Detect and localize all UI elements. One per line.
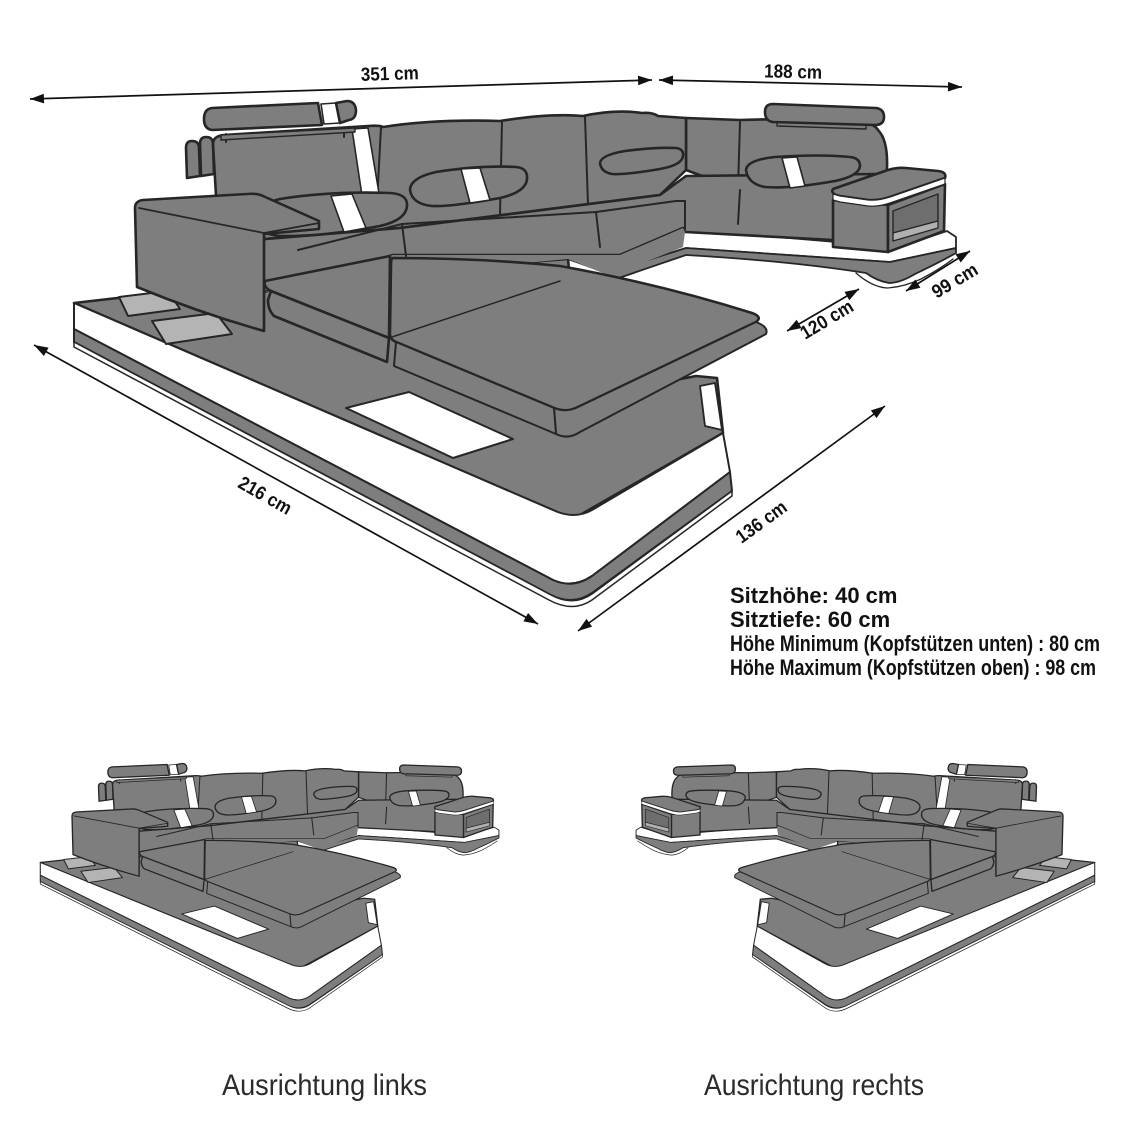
svg-text:99 cm: 99 cm	[928, 259, 982, 303]
svg-text:188 cm: 188 cm	[764, 61, 822, 83]
svg-text:120 cm: 120 cm	[797, 296, 858, 344]
svg-text:Sitztiefe: 60 cm: Sitztiefe: 60 cm	[730, 607, 890, 632]
svg-text:351 cm: 351 cm	[361, 63, 420, 86]
svg-text:Höhe Minimum (Kopfstützen unte: Höhe Minimum (Kopfstützen unten) : 80 cm	[730, 631, 1100, 656]
svg-text:136 cm: 136 cm	[732, 497, 791, 548]
svg-text:Höhe Maximum (Kopfstützen oben: Höhe Maximum (Kopfstützen oben) : 98 cm	[730, 655, 1096, 680]
svg-text:Ausrichtung links: Ausrichtung links	[222, 1069, 427, 1102]
svg-text:Sitzhöhe: 40 cm: Sitzhöhe: 40 cm	[730, 583, 897, 608]
svg-text:Ausrichtung rechts: Ausrichtung rechts	[704, 1069, 924, 1102]
svg-text:216 cm: 216 cm	[234, 473, 295, 520]
